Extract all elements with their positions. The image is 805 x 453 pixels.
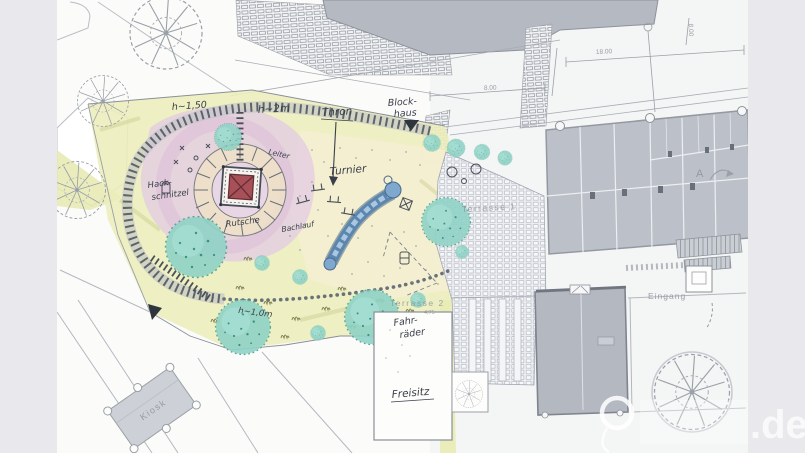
dim-8a: 8.00 [484, 85, 497, 92]
label-section-a: A [696, 168, 704, 180]
left-band [0, 0, 57, 453]
scanned-site-plan: Kiosk h~1,50 h~2m Thron Block- haus Leit… [0, 0, 805, 453]
dim-18: 18.00 [596, 48, 613, 56]
label-h2m: h~2m [258, 102, 291, 116]
label-blockhaus-2: haus [393, 107, 417, 120]
right-band [748, 0, 805, 453]
label-terrasse2: Terrasse 2 [390, 298, 445, 308]
label-terrasse2-level: 4,75 [424, 310, 435, 316]
label-eingang: Eingang [648, 291, 686, 301]
label-thron: Thron [322, 105, 353, 119]
dim-8b: 8.00 [687, 24, 694, 37]
watermark-text: .de [750, 403, 805, 447]
site-plan-canvas: Kiosk h~1,50 h~2m Thron Block- haus Leit… [0, 0, 805, 453]
